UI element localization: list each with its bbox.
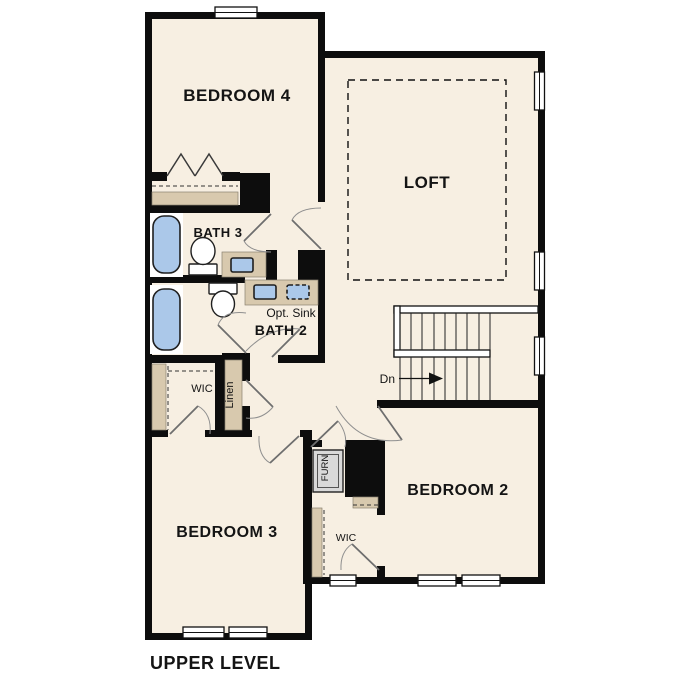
window — [229, 627, 267, 638]
wall — [145, 430, 168, 437]
sink — [231, 258, 253, 272]
wic2-shelf-left — [312, 508, 322, 577]
floorplan-drawing: BEDROOM 4 LOFT BATH 3 Opt. Sink BATH 2 W… — [0, 0, 687, 687]
bedroom2-label: BEDROOM 2 — [407, 482, 508, 499]
bathtub — [153, 289, 180, 350]
window — [462, 575, 500, 586]
wall — [150, 172, 167, 181]
optional-sink — [287, 285, 309, 299]
wall — [300, 430, 312, 437]
opt-sink-label: Opt. Sink — [266, 306, 316, 320]
wic-shelf — [152, 364, 166, 430]
wic2-shelf-top — [353, 497, 378, 508]
sink — [254, 285, 276, 299]
window — [215, 7, 257, 18]
stair-rail-top — [394, 306, 538, 313]
floorplan-page: BEDROOM 4 LOFT BATH 3 Opt. Sink BATH 2 W… — [0, 0, 687, 687]
toilet-tank — [189, 264, 217, 275]
bedroom3-label: BEDROOM 3 — [176, 524, 277, 541]
window — [535, 337, 545, 375]
window — [330, 575, 356, 586]
wic-bedroom2-label: WIC — [336, 532, 357, 544]
furnace-label: FURN — [320, 455, 331, 482]
wall — [318, 12, 325, 202]
wall — [266, 250, 277, 280]
wall — [345, 440, 385, 497]
stairs-down-label: Dn — [380, 372, 395, 386]
stair-rail-mid — [394, 350, 490, 357]
wall — [222, 172, 240, 181]
floor-area — [145, 12, 545, 640]
wall — [240, 173, 270, 213]
wall — [318, 250, 325, 360]
wall — [538, 51, 545, 584]
wall — [278, 355, 325, 363]
wall — [322, 51, 545, 58]
window — [418, 575, 456, 586]
plan-title: UPPER LEVEL — [150, 653, 281, 673]
wall — [222, 353, 250, 360]
wic-bedroom3-label: WIC — [191, 383, 212, 395]
wall — [377, 400, 538, 408]
wall — [305, 577, 312, 640]
bath3-label: BATH 3 — [194, 225, 243, 240]
window — [183, 627, 224, 638]
loft-label: LOFT — [404, 173, 450, 192]
window — [535, 72, 545, 110]
wall — [303, 437, 312, 584]
bedroom4-label: BEDROOM 4 — [183, 86, 291, 105]
bath2-label: BATH 2 — [255, 322, 308, 338]
linen-label: Linen — [224, 382, 236, 409]
window — [535, 252, 545, 290]
toilet-bowl — [191, 238, 215, 265]
closet-shelf — [152, 192, 238, 205]
wall — [205, 430, 252, 437]
floor-right-column — [305, 51, 545, 584]
bathtub — [153, 216, 180, 273]
